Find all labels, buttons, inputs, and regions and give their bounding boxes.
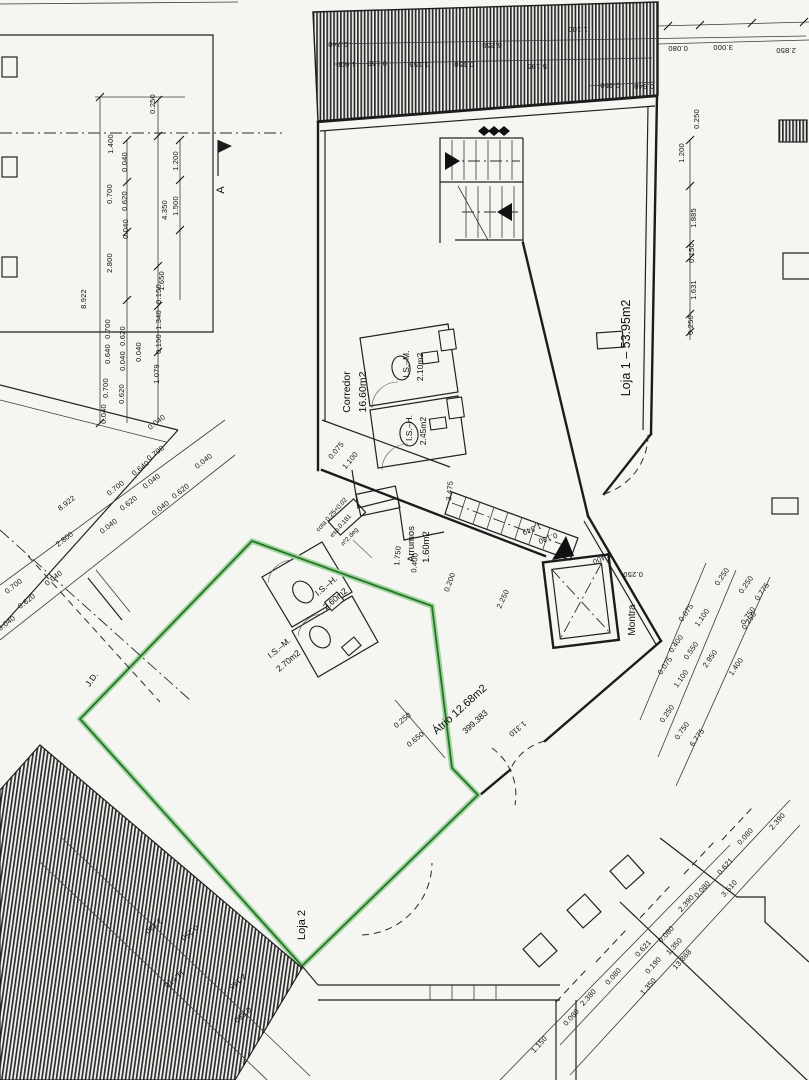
dim-label: 0.650	[600, 81, 620, 90]
dim-label: 3.000	[713, 43, 733, 52]
dim-label: 1.400	[106, 134, 115, 154]
dim-label: 0.940	[634, 82, 654, 91]
room-label-corredor: Corredor	[341, 371, 353, 413]
dim-label: 0.250	[148, 94, 157, 114]
dim-label: 0.150	[367, 59, 387, 68]
dim-label: 0.700	[101, 378, 110, 398]
dim-label: 1.100	[568, 25, 588, 34]
section-label: A	[215, 186, 227, 194]
dim-label: 2.850	[776, 46, 796, 55]
dim-label: 8.922	[79, 289, 88, 309]
dim-label: 1.200	[171, 151, 180, 171]
dim-label: 4.350	[160, 200, 169, 220]
room-area-ism-top: 2.10m2	[415, 353, 425, 382]
dim-label: 2.800	[105, 253, 114, 273]
room-label-loja1: Loja 1 – 53.95m2	[619, 300, 633, 397]
room-label-ism-top: I.S.–M.	[401, 351, 411, 378]
dim-label: 1.340	[154, 310, 163, 330]
dim-label: 1.750	[392, 546, 403, 566]
dim-label: 1.155	[409, 60, 429, 69]
room-area-arrumos: 1.60m2	[421, 531, 432, 563]
room-label-loja2: Loja 2	[296, 910, 308, 940]
wall-stub-hatch	[779, 120, 807, 142]
dim-label: 6.250	[482, 41, 502, 50]
basin	[447, 397, 465, 419]
dim-label: 0.700	[105, 184, 114, 204]
dim-label: 0.250	[686, 315, 695, 335]
dim-label: 0.150	[154, 334, 163, 354]
room-area-corredor: 16.60m2	[357, 371, 369, 412]
room-area-ish-top: 2.45m2	[418, 417, 428, 446]
room-label-ish-top: I.S.–H.	[404, 415, 414, 441]
dim-label: 0.040	[120, 152, 129, 172]
dim-label: 1.200	[677, 143, 686, 163]
dim-label: 0.620	[120, 191, 129, 211]
room-label-arrumos: Arrumos	[406, 526, 417, 562]
dim-label: 1.600	[336, 60, 356, 69]
dim-label: 0.620	[118, 326, 127, 346]
dim-label: 0.250	[623, 570, 643, 579]
dim-label: 3.475	[444, 481, 455, 501]
dim-label: 0.150	[687, 243, 696, 263]
basin	[439, 329, 457, 351]
floor-plan-page: A	[0, 0, 809, 1080]
dim-label: 0.150	[154, 284, 163, 304]
dim-label: 0.250	[692, 109, 701, 129]
dim-label: 0.080	[668, 44, 688, 53]
room-label-montra: Montra	[627, 604, 638, 636]
dim-label: 0.040	[118, 351, 127, 371]
dim-label: 0.150	[454, 60, 474, 69]
dim-label: 0.620	[117, 384, 126, 404]
dim-label: 1.631	[689, 280, 698, 300]
dim-label: 0.040	[134, 342, 143, 362]
dim-label: 0.040	[121, 219, 130, 239]
dim-label: 0.640	[103, 344, 112, 364]
dim-label: 1.885	[689, 208, 698, 228]
floor-plan-svg: A	[0, 0, 809, 1080]
dim-label: 1.079	[152, 364, 161, 384]
dim-label: 5.195	[527, 62, 547, 71]
dim-label: 0.740	[328, 40, 348, 49]
dim-label: 0.040	[99, 404, 108, 424]
dim-label: 0.700	[103, 319, 112, 339]
dim-label: 1.500	[171, 196, 180, 216]
